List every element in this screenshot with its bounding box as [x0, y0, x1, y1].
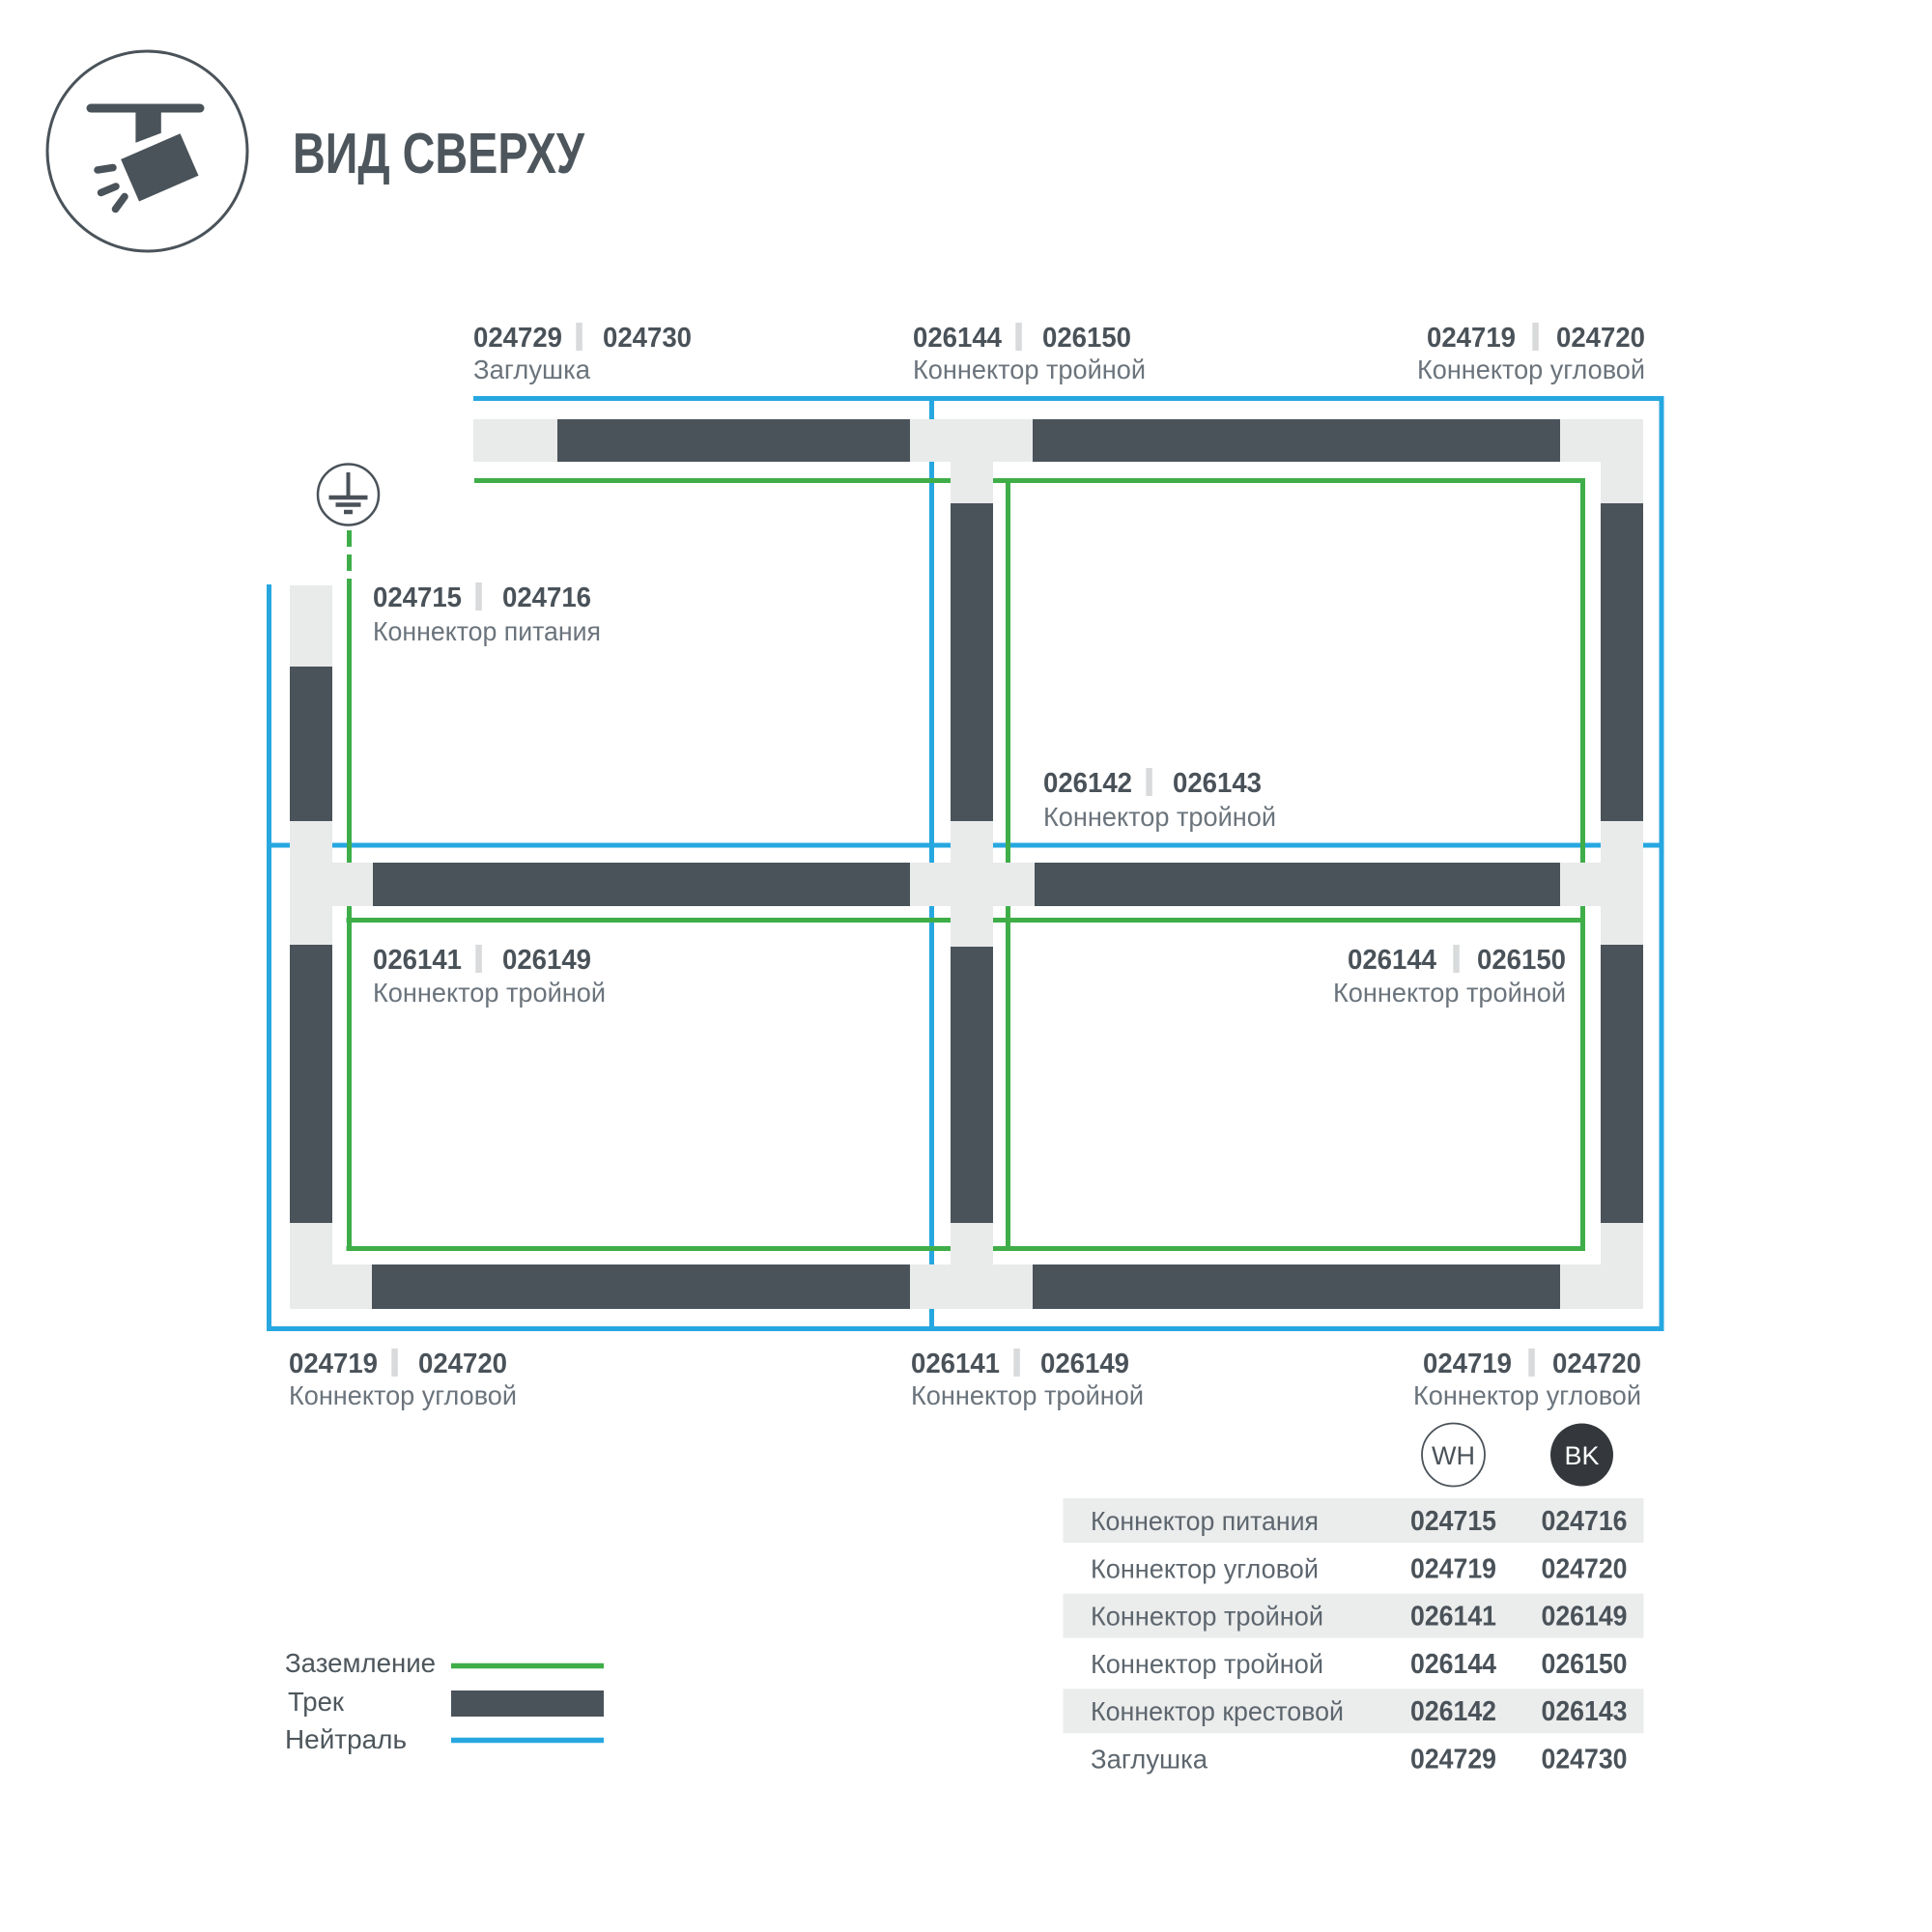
svg-text:024719: 024719 — [1423, 1349, 1512, 1379]
svg-text:Коннектор угловой: Коннектор угловой — [1413, 1380, 1641, 1410]
svg-text:BK: BK — [1564, 1441, 1599, 1470]
svg-text:026142: 026142 — [1043, 768, 1132, 799]
svg-text:Коннектор тройной: Коннектор тройной — [373, 978, 606, 1008]
svg-text:Заглушка: Заглушка — [1091, 1745, 1207, 1775]
svg-text:026141: 026141 — [373, 945, 462, 976]
svg-text:024730: 024730 — [1542, 1745, 1628, 1776]
svg-text:026143: 026143 — [1173, 768, 1262, 799]
svg-text:Коннектор тройной: Коннектор тройной — [1091, 1602, 1323, 1632]
svg-text:Коннектор тройной: Коннектор тройной — [1043, 802, 1276, 832]
svg-text:Трек: Трек — [288, 1687, 345, 1717]
svg-text:026150: 026150 — [1477, 945, 1566, 976]
svg-text:Коннектор тройной: Коннектор тройной — [1091, 1649, 1323, 1679]
svg-text:Коннектор питания: Коннектор питания — [1091, 1506, 1319, 1536]
svg-text:026144: 026144 — [913, 323, 1002, 354]
svg-text:024730: 024730 — [603, 323, 692, 354]
svg-text:026144: 026144 — [1348, 945, 1436, 976]
svg-text:Коннектор тройной: Коннектор тройной — [911, 1380, 1144, 1410]
svg-text:026149: 026149 — [1040, 1349, 1129, 1379]
svg-text:026150: 026150 — [1542, 1649, 1628, 1680]
svg-text:026149: 026149 — [1542, 1602, 1628, 1633]
svg-text:ВИД СВЕРХУ: ВИД СВЕРХУ — [293, 122, 585, 185]
svg-text:024715: 024715 — [1410, 1506, 1496, 1537]
svg-text:024719: 024719 — [1427, 323, 1516, 354]
svg-text:WH: WH — [1432, 1441, 1475, 1470]
svg-text:026144: 026144 — [1410, 1649, 1496, 1680]
svg-text:024715: 024715 — [373, 582, 462, 613]
svg-text:024719: 024719 — [1410, 1553, 1496, 1584]
svg-text:026143: 026143 — [1542, 1696, 1628, 1727]
svg-text:024729: 024729 — [1410, 1745, 1496, 1776]
svg-text:026150: 026150 — [1042, 323, 1131, 354]
svg-text:024720: 024720 — [1552, 1349, 1641, 1379]
svg-text:Заглушка: Заглушка — [473, 355, 590, 384]
svg-text:024716: 024716 — [502, 582, 591, 613]
svg-text:024720: 024720 — [1556, 323, 1645, 354]
svg-text:024716: 024716 — [1542, 1506, 1628, 1537]
svg-text:024729: 024729 — [473, 323, 562, 354]
svg-text:Нейтраль: Нейтраль — [285, 1724, 407, 1754]
svg-text:026149: 026149 — [502, 945, 591, 976]
svg-text:026141: 026141 — [911, 1349, 1000, 1379]
svg-text:Коннектор тройной: Коннектор тройной — [1333, 978, 1566, 1008]
svg-text:026141: 026141 — [1410, 1602, 1496, 1633]
svg-text:Коннектор угловой: Коннектор угловой — [1091, 1553, 1319, 1583]
svg-text:Коннектор питания: Коннектор питания — [373, 616, 601, 646]
svg-text:024720: 024720 — [418, 1349, 507, 1379]
svg-text:Коннектор крестовой: Коннектор крестовой — [1091, 1696, 1344, 1726]
svg-text:Коннектор тройной: Коннектор тройной — [913, 355, 1146, 384]
svg-text:024720: 024720 — [1542, 1553, 1628, 1584]
svg-text:Коннектор угловой: Коннектор угловой — [289, 1380, 517, 1410]
svg-text:024719: 024719 — [289, 1349, 378, 1379]
svg-text:026142: 026142 — [1410, 1696, 1496, 1727]
svg-text:Коннектор угловой: Коннектор угловой — [1417, 355, 1645, 384]
svg-text:Заземление: Заземление — [285, 1648, 436, 1678]
